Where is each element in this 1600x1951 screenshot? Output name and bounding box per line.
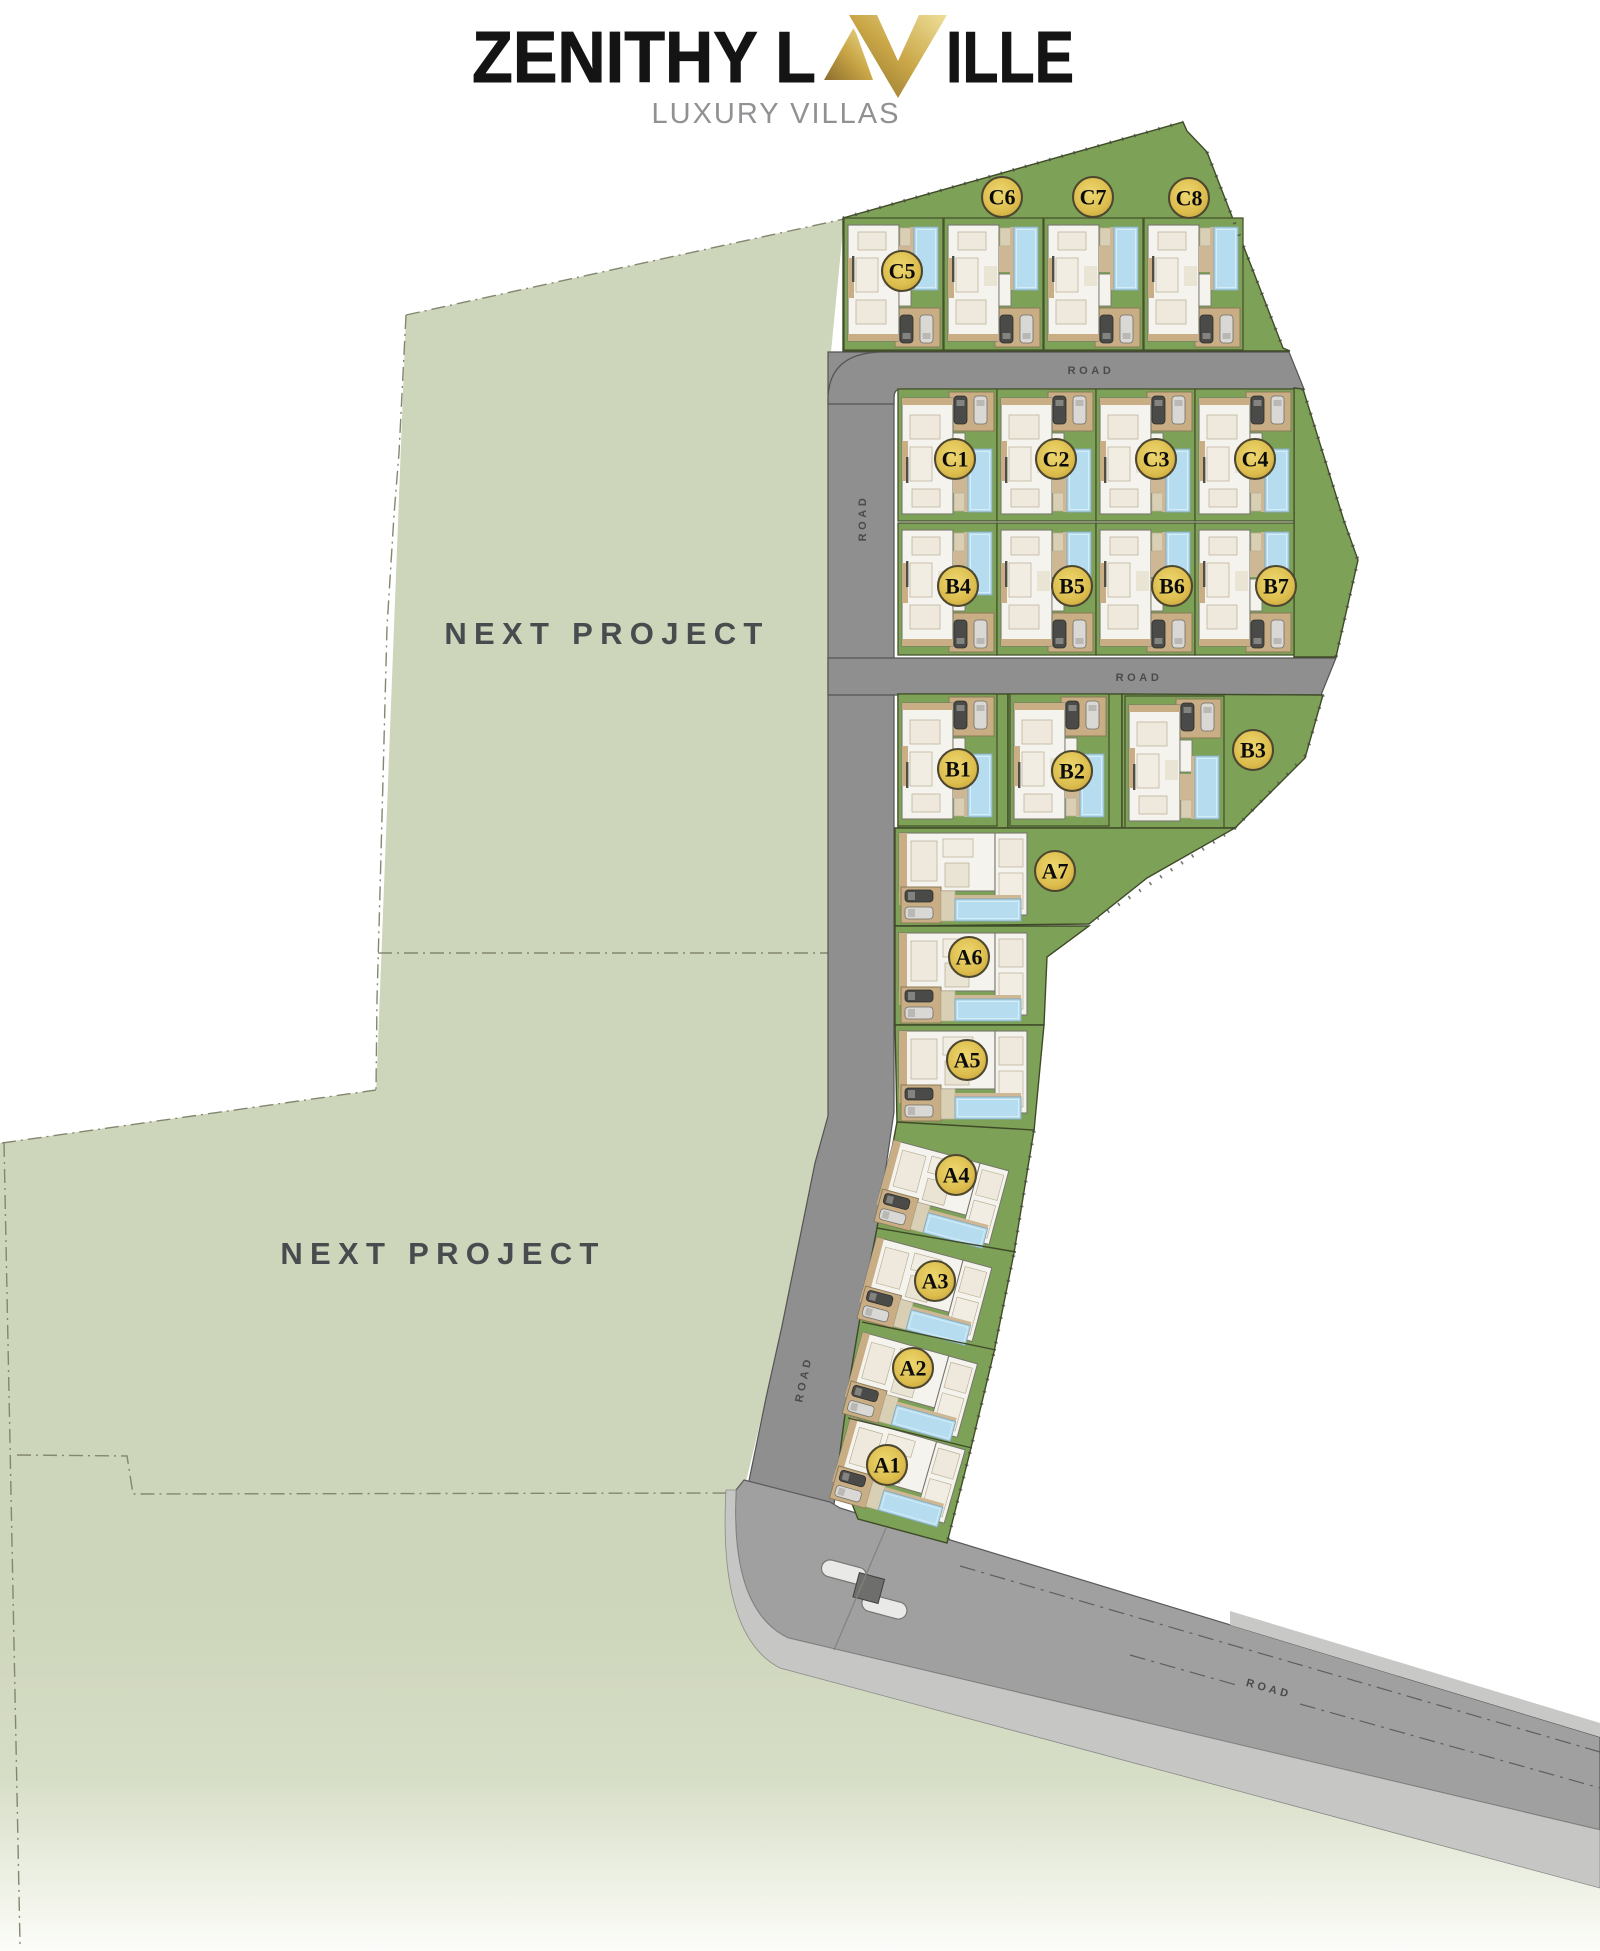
svg-text:ROAD: ROAD bbox=[857, 495, 869, 542]
svg-text:ROAD: ROAD bbox=[1116, 672, 1163, 684]
svg-text:LUXURY VILLAS: LUXURY VILLAS bbox=[652, 98, 901, 130]
svg-text:NEXT PROJECT: NEXT PROJECT bbox=[280, 1236, 605, 1271]
svg-text:A6: A6 bbox=[956, 945, 983, 970]
svg-text:B7: B7 bbox=[1263, 574, 1289, 599]
svg-text:C6: C6 bbox=[989, 185, 1016, 210]
svg-text:C8: C8 bbox=[1176, 186, 1203, 211]
svg-text:C1: C1 bbox=[942, 447, 969, 472]
svg-text:B6: B6 bbox=[1159, 574, 1185, 599]
svg-text:C3: C3 bbox=[1143, 447, 1170, 472]
svg-text:ILLE: ILLE bbox=[946, 18, 1074, 98]
svg-text:C2: C2 bbox=[1043, 447, 1070, 472]
svg-text:A2: A2 bbox=[900, 1356, 927, 1381]
svg-text:B3: B3 bbox=[1240, 738, 1266, 763]
svg-text:B2: B2 bbox=[1059, 759, 1085, 784]
svg-text:B1: B1 bbox=[945, 757, 971, 782]
svg-text:A3: A3 bbox=[922, 1269, 949, 1294]
svg-text:B5: B5 bbox=[1059, 574, 1085, 599]
svg-text:A1: A1 bbox=[874, 1453, 901, 1478]
svg-text:C4: C4 bbox=[1242, 447, 1269, 472]
svg-text:B4: B4 bbox=[945, 574, 971, 599]
svg-text:ZENITHY L: ZENITHY L bbox=[472, 18, 816, 98]
svg-text:A5: A5 bbox=[954, 1048, 981, 1073]
svg-text:NEXT PROJECT: NEXT PROJECT bbox=[444, 616, 769, 651]
svg-text:C5: C5 bbox=[889, 259, 916, 284]
svg-text:C7: C7 bbox=[1080, 185, 1107, 210]
svg-text:A7: A7 bbox=[1042, 859, 1069, 884]
svg-text:A4: A4 bbox=[943, 1163, 970, 1188]
svg-text:ROAD: ROAD bbox=[1068, 365, 1115, 377]
